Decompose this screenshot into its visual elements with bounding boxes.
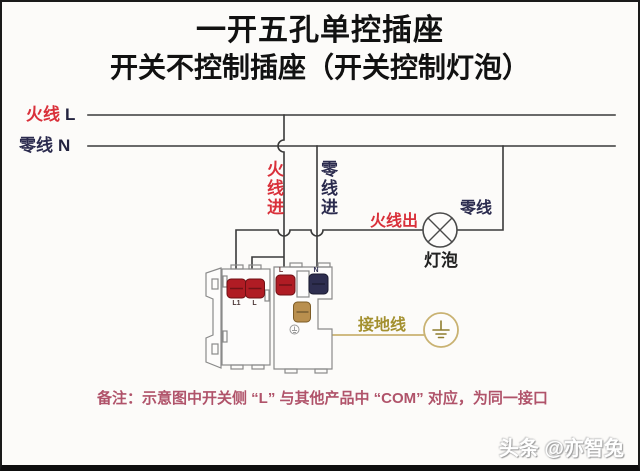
live-in-label: 火线进 — [265, 160, 282, 217]
neutral-to-bulb-label: 零线 — [460, 201, 492, 217]
terminal-label-n-socket: N — [310, 267, 322, 274]
socket-terminal-live — [276, 275, 295, 295]
terminal-label-l-switch: L — [245, 300, 264, 307]
socket-terminal-neutral — [309, 274, 328, 294]
terminal-label-l1: L1 — [227, 300, 246, 307]
neutral-wire-label: 零线N — [19, 137, 70, 154]
live-out-label: 火线出 — [370, 214, 418, 230]
live-wire-label: 火线L — [26, 106, 75, 123]
earth-wire-label: 接地线 — [358, 318, 406, 334]
socket-terminal-earth — [294, 302, 311, 322]
footnote: 备注：示意图中开关侧 “L” 与其他产品中 “COM” 对应，为同一接口 — [97, 391, 548, 406]
live-wire-letter: L — [65, 105, 75, 124]
diagram-canvas: 一开五孔单控插座 开关不控制插座（开关控制灯泡） — [0, 0, 640, 471]
socket-slot — [297, 271, 309, 297]
bulb-neutral-wire — [457, 146, 503, 230]
bulb-label: 灯泡 — [424, 252, 458, 269]
switch-terminal-l — [246, 279, 265, 298]
bulb-icon — [423, 213, 457, 247]
neutral-wire-letter: N — [58, 136, 70, 155]
terminal-label-l-socket: L — [275, 267, 287, 274]
watermark: 头条 @亦智兔 — [499, 439, 624, 459]
mounting-bracket — [206, 268, 221, 368]
live-wire-name: 火线 — [26, 105, 60, 124]
switch-terminal-l1 — [227, 279, 246, 298]
neutral-wire-name: 零线 — [19, 136, 53, 155]
neutral-in-label: 零线进 — [319, 160, 336, 217]
earth-ground-icon — [424, 313, 458, 347]
